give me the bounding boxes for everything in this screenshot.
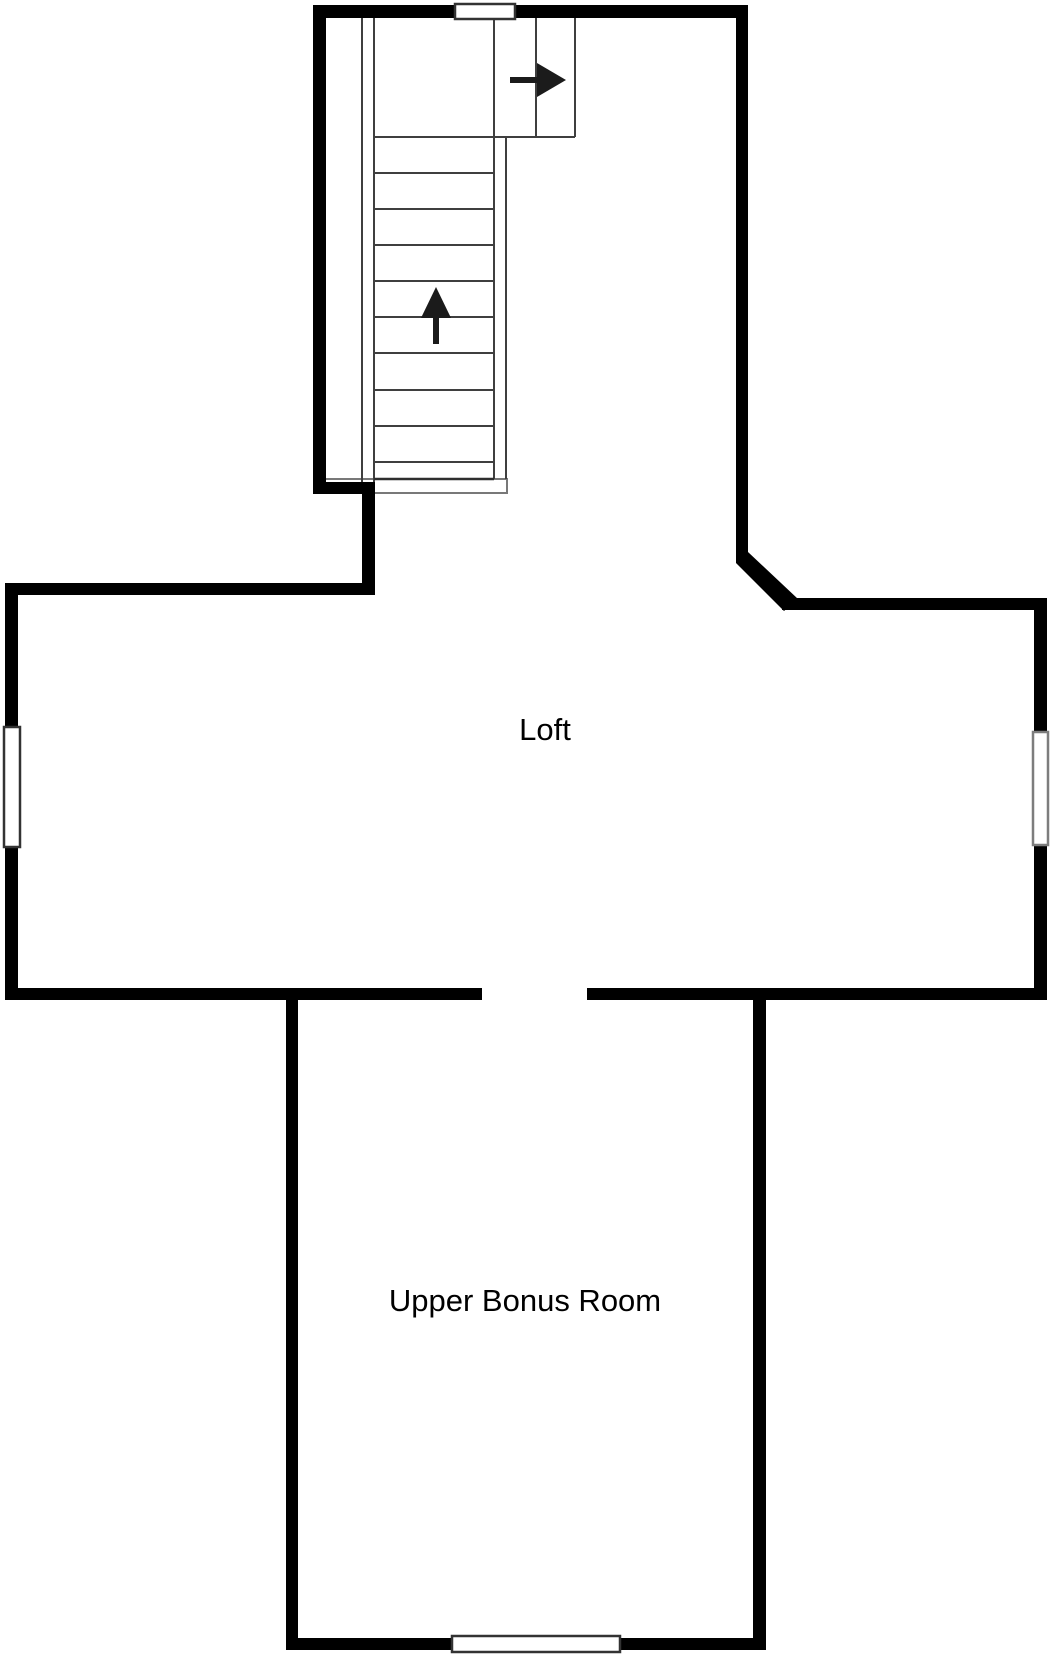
wall-loft-top-left <box>5 583 375 595</box>
windows <box>4 4 1048 1652</box>
wall-loft-top-right <box>782 598 1047 610</box>
window-left <box>4 727 20 847</box>
stairs-exit-right-arrow-icon <box>510 63 566 97</box>
floor-plan-canvas: Loft Upper Bonus Room <box>0 0 1053 1656</box>
wall-stair-left <box>313 5 326 494</box>
floor-plan-svg: Loft Upper Bonus Room <box>0 0 1053 1656</box>
wall-stair-top <box>313 5 748 18</box>
window-right <box>1033 732 1048 845</box>
staircase <box>314 18 575 493</box>
wall-bonus-right <box>753 1000 766 1650</box>
wall-stair-right <box>736 5 748 555</box>
up-arrow-shaft <box>433 317 439 344</box>
room-label-upper-bonus-room: Upper Bonus Room <box>389 1283 661 1318</box>
room-label-loft: Loft <box>519 712 571 747</box>
wall-left-mid-vertical <box>362 482 375 595</box>
wall-bonus-left <box>286 1000 298 1650</box>
window-bottom <box>452 1636 620 1652</box>
wall-loft-bottom-left <box>5 988 482 1000</box>
stairs-up-arrow-icon <box>421 287 451 344</box>
wall-loft-bottom-right <box>587 988 1047 1000</box>
right-arrow-head <box>537 63 566 97</box>
up-arrow-head <box>421 287 451 318</box>
window-top <box>455 4 515 19</box>
walls <box>5 5 1047 1650</box>
right-arrow-shaft <box>510 77 538 83</box>
